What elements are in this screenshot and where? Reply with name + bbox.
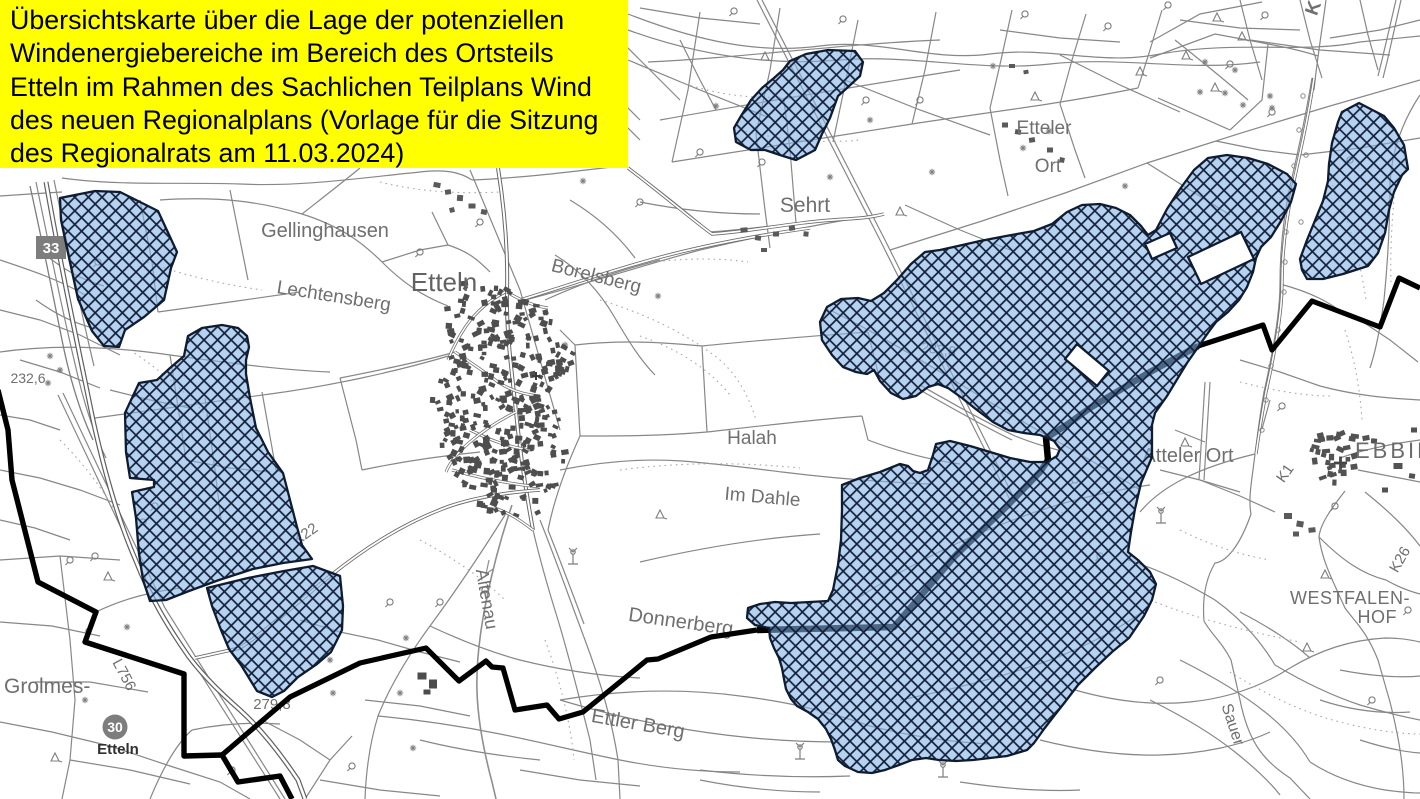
svg-text:Gellinghausen: Gellinghausen bbox=[261, 220, 389, 242]
svg-text:WESTFALEN-: WESTFALEN- bbox=[1290, 588, 1410, 608]
svg-text:33: 33 bbox=[43, 240, 60, 257]
svg-text:Ort: Ort bbox=[1035, 156, 1062, 177]
svg-text:232,6: 232,6 bbox=[10, 370, 45, 386]
svg-text:Grolmes-: Grolmes- bbox=[4, 675, 90, 698]
svg-text:EBBINGHAUSEN: EBBINGHAUSEN bbox=[1355, 438, 1420, 463]
svg-text:Halah: Halah bbox=[727, 428, 777, 449]
svg-text:Etteln: Etteln bbox=[97, 741, 139, 758]
svg-text:Etteln: Etteln bbox=[411, 267, 478, 297]
svg-text:30: 30 bbox=[107, 719, 123, 735]
svg-text:Etteler: Etteler bbox=[1017, 118, 1073, 139]
svg-text:Atteler Ort: Atteler Ort bbox=[1142, 445, 1234, 467]
svg-text:Sehrt: Sehrt bbox=[780, 194, 830, 217]
svg-text:HOF: HOF bbox=[1358, 607, 1398, 627]
